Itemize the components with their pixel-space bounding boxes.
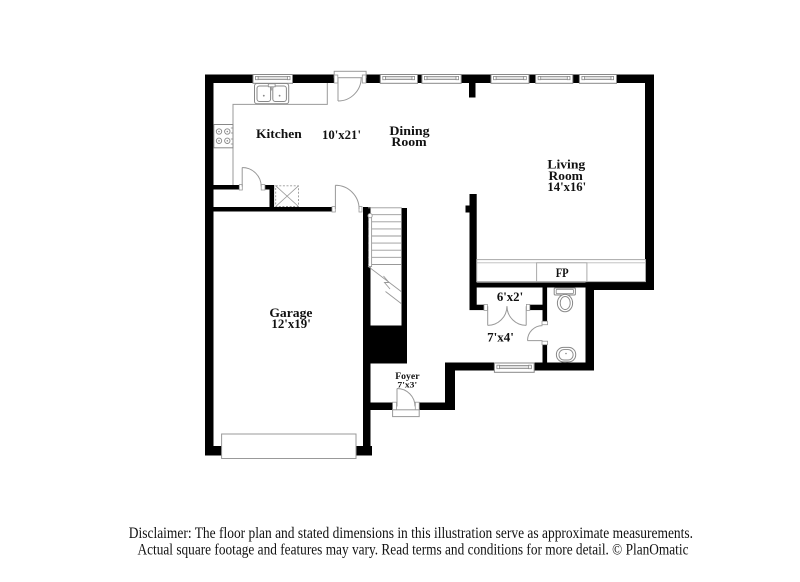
svg-text:FP: FP bbox=[556, 266, 569, 280]
svg-text:7'x3': 7'x3' bbox=[397, 380, 417, 390]
svg-text:Disclaimer: The floor plan and: Disclaimer: The floor plan and stated di… bbox=[129, 525, 693, 542]
svg-text:10'x21': 10'x21' bbox=[322, 128, 361, 142]
svg-text:12'x19': 12'x19' bbox=[271, 317, 310, 331]
svg-text:Kitchen: Kitchen bbox=[256, 127, 302, 141]
svg-text:Room: Room bbox=[391, 135, 427, 149]
svg-text:6'x2': 6'x2' bbox=[497, 290, 523, 304]
svg-text:Actual square footage and feat: Actual square footage and features may v… bbox=[138, 542, 689, 559]
svg-text:14'x16': 14'x16' bbox=[547, 180, 586, 194]
svg-text:7'x4': 7'x4' bbox=[487, 330, 514, 344]
